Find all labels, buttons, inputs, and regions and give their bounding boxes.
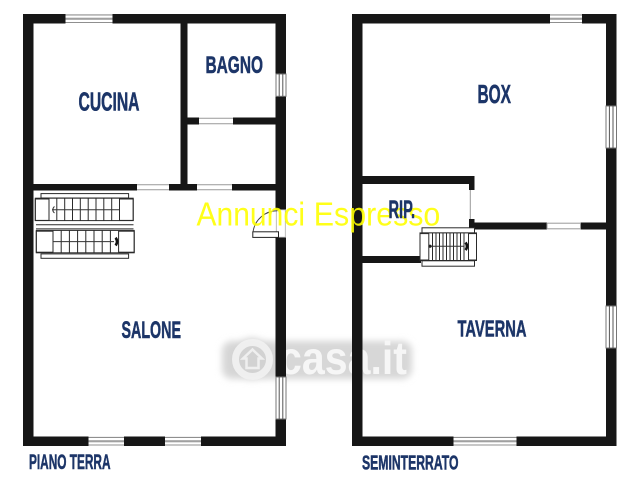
svg-text:Espresso: Espresso: [314, 197, 441, 234]
svg-text:TAVERNA: TAVERNA: [458, 316, 527, 342]
svg-text:SEMINTERRATO: SEMINTERRATO: [362, 452, 459, 475]
svg-text:CUCINA: CUCINA: [79, 89, 140, 117]
svg-text:SALONE: SALONE: [122, 317, 182, 344]
svg-text:Annunci: Annunci: [197, 197, 306, 234]
svg-text:RIP.: RIP.: [389, 196, 416, 224]
svg-text:BOX: BOX: [478, 81, 512, 109]
svg-text:BAGNO: BAGNO: [206, 52, 264, 79]
svg-text:casa.it: casa.it: [279, 332, 407, 384]
svg-text:PIANO TERRA: PIANO TERRA: [29, 451, 111, 474]
